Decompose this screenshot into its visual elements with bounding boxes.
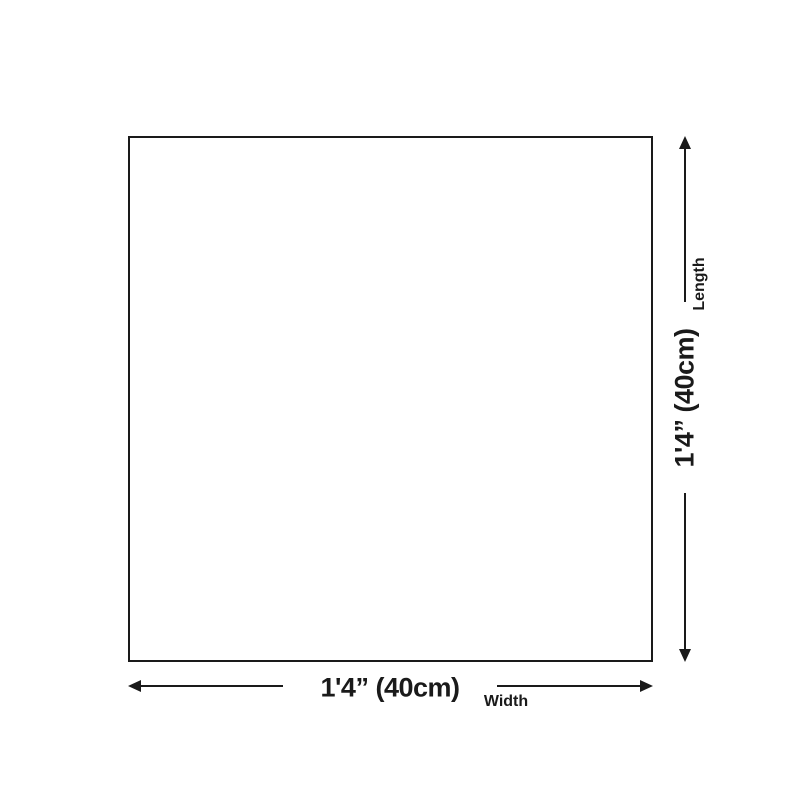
product-preview-box: [128, 136, 653, 662]
width-arrow-right-icon: [640, 680, 653, 692]
length-arrow-bottom-segment: [684, 493, 686, 654]
length-axis-label: Length: [691, 257, 709, 310]
dimension-diagram: Length 1'4” (40cm) 1'4” (40cm) Width: [0, 0, 800, 800]
width-axis-label: Width: [484, 693, 528, 711]
width-dimension-value: 1'4” (40cm): [321, 673, 460, 704]
length-arrow-top-segment: [684, 145, 686, 302]
length-arrow-down-icon: [679, 649, 691, 662]
length-dimension-value: 1'4” (40cm): [670, 329, 701, 468]
width-arrow-left-segment: [138, 685, 283, 687]
width-arrow-right-segment: [497, 685, 642, 687]
